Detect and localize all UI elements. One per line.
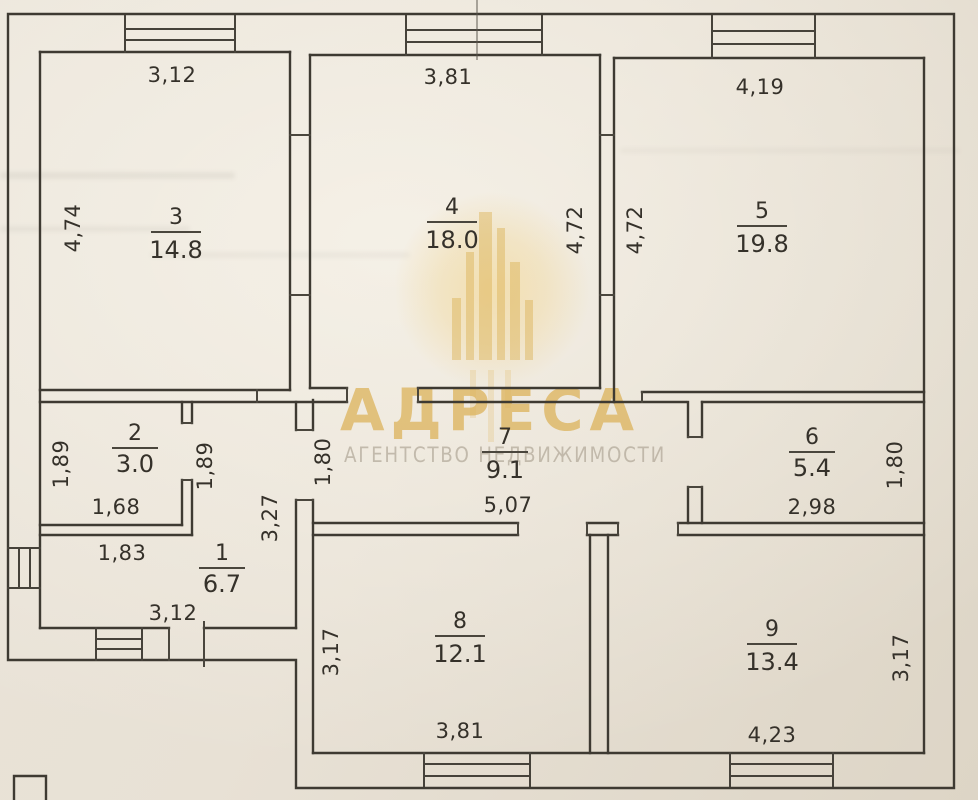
dim-room4-top: 3,81 [424, 65, 473, 89]
room-8-number: 8 [453, 609, 467, 634]
dim-room2-bottom-outer: 1,83 [98, 541, 147, 565]
dim-room1-bottom: 3,12 [149, 601, 198, 625]
room-8-label: 8 12.1 [433, 609, 486, 668]
room-2-area: 3.0 [116, 450, 154, 478]
room-4-number: 4 [445, 195, 459, 220]
room-5-area: 19.8 [735, 230, 788, 258]
dim-room2-right: 1,89 [193, 442, 217, 491]
door-opening-room6 [688, 402, 702, 523]
dim-room4-right: 4,72 [563, 206, 587, 255]
room-5-number: 5 [755, 199, 769, 224]
door-opening-room2 [182, 423, 192, 480]
room-3-label: 3 14.8 [149, 205, 202, 264]
dim-room7-bottom: 5,07 [484, 493, 533, 517]
door-opening-room9 [618, 523, 678, 535]
dim-room6-bottom: 2,98 [788, 495, 837, 519]
dim-room2-bottom-inner: 1,68 [92, 495, 141, 519]
window-room1-bottom [96, 628, 142, 660]
room-2-number: 2 [128, 421, 142, 446]
dim-room9-right: 3,17 [889, 634, 913, 683]
room-3-area: 14.8 [149, 236, 202, 264]
room-3-number: 3 [169, 205, 183, 230]
window-room9-bottom [730, 753, 833, 786]
interior-walls-rooms-1-2 [40, 400, 313, 753]
room-1-number: 1 [215, 541, 229, 566]
room-9-area: 13.4 [745, 648, 798, 676]
room-1-area: 6.7 [203, 570, 241, 598]
dim-room8-left: 3,17 [319, 628, 343, 677]
porch-outline [14, 776, 46, 800]
room-4-area: 18.0 [425, 226, 478, 254]
window-room5-top [712, 16, 815, 58]
room-7-area: 9.1 [486, 456, 524, 484]
room-5-label: 5 19.8 [735, 199, 788, 258]
floor-plan-scan: АДРЕСА АГЕНТСТВО НЕДВИЖИМОСТИ [0, 0, 978, 800]
room-6-label: 6 5.4 [790, 425, 834, 482]
dim-room5-left: 4,72 [623, 206, 647, 255]
watermark-title: АДРЕСА [340, 376, 640, 444]
room-7-number: 7 [498, 425, 512, 450]
dim-room3-left: 4,74 [61, 204, 85, 253]
room-6-number: 6 [805, 425, 819, 450]
dim-room5-top: 4,19 [736, 75, 785, 99]
door-opening-room8 [518, 523, 587, 535]
dim-room2-left: 1,89 [49, 440, 73, 489]
dim-room3-top: 3,12 [148, 63, 197, 87]
room-8-area: 12.1 [433, 640, 486, 668]
room-2-label: 2 3.0 [113, 421, 157, 478]
window-room4-top [406, 16, 542, 55]
dim-room8-bottom: 3,81 [436, 719, 485, 743]
window-room3-top [125, 16, 235, 52]
dim-room7-left: 1,80 [311, 438, 335, 487]
window-room1-left [8, 548, 40, 588]
floor-plan-drawing: АДРЕСА АГЕНТСТВО НЕДВИЖИМОСТИ [0, 0, 978, 800]
dim-room1-right: 3,27 [258, 494, 282, 543]
dim-room6-right: 1,80 [883, 441, 907, 490]
room-1-label: 1 6.7 [200, 541, 244, 598]
interior-walls-rooms-8-9 [590, 535, 608, 753]
window-room8-bottom [424, 753, 530, 786]
room-9-label: 9 13.4 [745, 617, 798, 676]
dim-room9-bottom: 4,23 [748, 723, 797, 747]
room-9-number: 9 [765, 617, 779, 642]
room-6-area: 5.4 [793, 454, 831, 482]
